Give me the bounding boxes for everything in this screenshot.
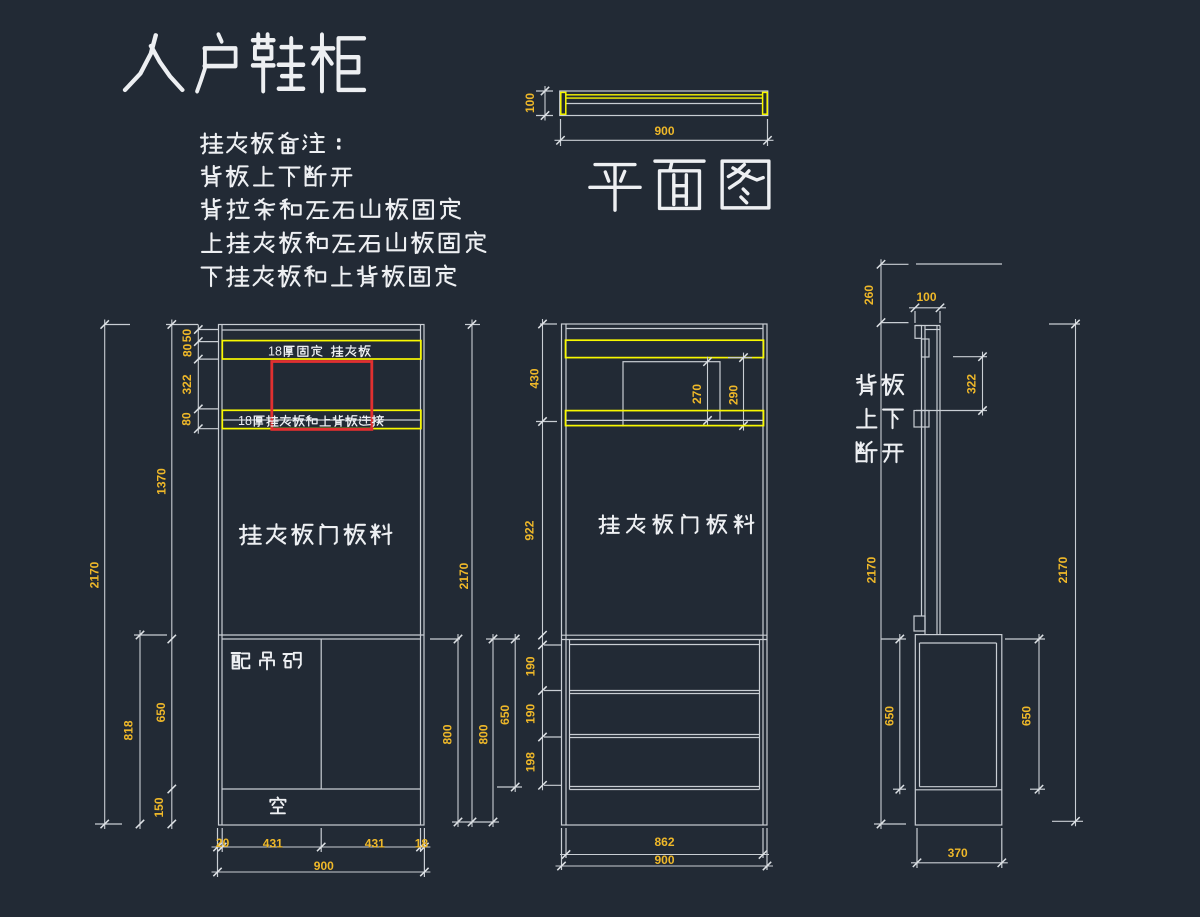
- svg-text:922: 922: [523, 520, 537, 540]
- svg-text:18: 18: [238, 414, 252, 428]
- svg-text:198: 198: [524, 752, 538, 772]
- svg-text:650: 650: [1020, 706, 1034, 726]
- svg-text:80: 80: [180, 412, 194, 426]
- svg-text:370: 370: [948, 846, 968, 860]
- svg-text:800: 800: [477, 724, 491, 744]
- svg-text:2170: 2170: [88, 561, 102, 588]
- svg-text:431: 431: [365, 837, 385, 851]
- svg-text:322: 322: [965, 374, 979, 394]
- svg-text:2170: 2170: [1056, 556, 1070, 583]
- svg-text:100: 100: [916, 290, 936, 304]
- svg-text:20: 20: [216, 836, 230, 850]
- svg-text:431: 431: [263, 837, 283, 851]
- svg-text:900: 900: [654, 124, 674, 138]
- svg-text:862: 862: [654, 835, 674, 849]
- svg-text:322: 322: [180, 374, 194, 394]
- svg-text:650: 650: [498, 704, 512, 724]
- svg-text:50: 50: [180, 329, 194, 343]
- svg-text:190: 190: [524, 703, 538, 723]
- svg-text:900: 900: [314, 859, 334, 873]
- svg-text:18: 18: [268, 344, 282, 358]
- svg-text:650: 650: [883, 706, 897, 726]
- svg-text:800: 800: [441, 724, 455, 744]
- svg-text:150: 150: [152, 797, 166, 817]
- svg-text:190: 190: [523, 656, 537, 676]
- svg-text:260: 260: [862, 285, 876, 305]
- svg-text:430: 430: [528, 368, 542, 388]
- svg-text:2170: 2170: [865, 556, 879, 583]
- svg-text:650: 650: [154, 702, 168, 722]
- svg-text:18: 18: [415, 837, 429, 851]
- svg-text:100: 100: [523, 93, 537, 113]
- svg-text:80: 80: [181, 343, 195, 357]
- svg-text:818: 818: [122, 720, 136, 740]
- svg-text:2170: 2170: [457, 562, 471, 589]
- svg-text:1370: 1370: [155, 468, 169, 495]
- svg-text:900: 900: [654, 853, 674, 867]
- svg-text:270: 270: [690, 384, 704, 404]
- svg-text:290: 290: [727, 385, 741, 405]
